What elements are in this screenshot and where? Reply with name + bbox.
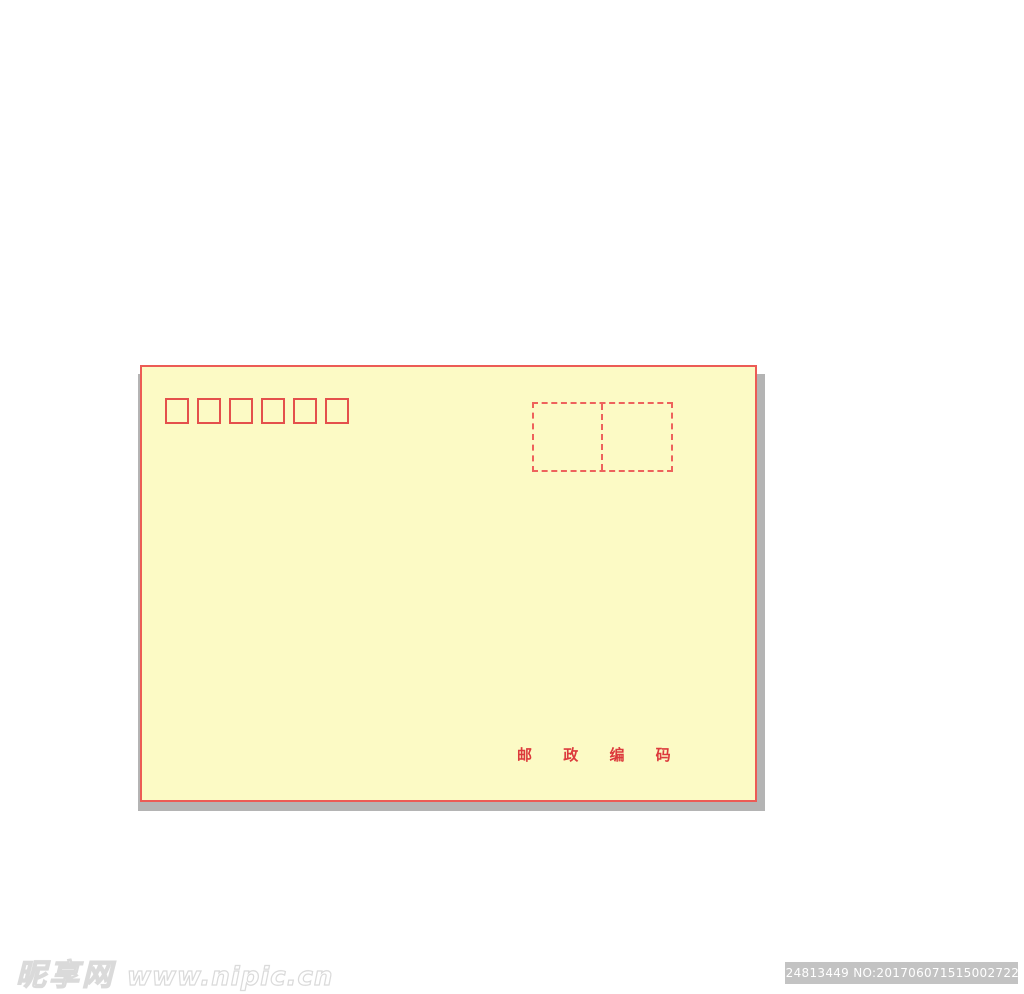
id-bar: ID:24813449 NO:20170607151500272290 [785,962,1018,984]
watermark-site-name: 昵享网 [16,950,115,994]
watermark: 昵享网 www.nipic.cn [16,950,333,994]
postal-code-box [165,398,189,424]
stamp-area [532,402,673,472]
postal-code-box [229,398,253,424]
postal-code-box [325,398,349,424]
id-bar-text: ID:24813449 NO:20170607151500272290 [768,966,1024,980]
postal-code-box [261,398,285,424]
postal-code-boxes [165,398,349,424]
envelope: 邮 政 编 码 [140,365,757,802]
stamp-divider [601,404,603,470]
watermark-site-url: www.nipic.cn [127,962,333,992]
postal-code-box [293,398,317,424]
postal-code-box [197,398,221,424]
postal-code-label: 邮 政 编 码 [517,744,684,765]
